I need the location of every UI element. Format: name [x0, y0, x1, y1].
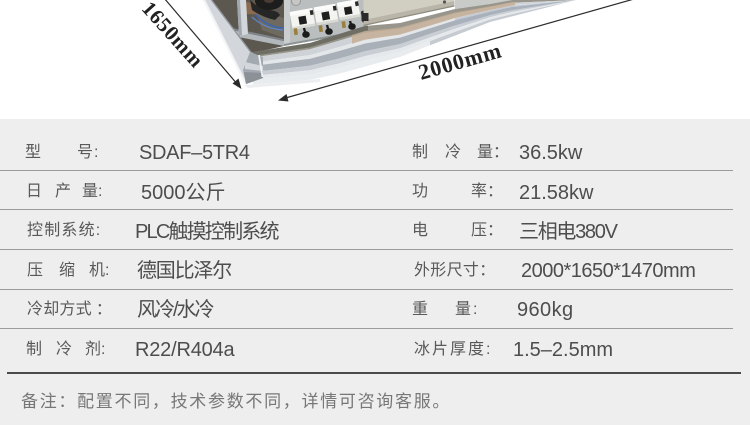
svg-text:1650mm: 1650mm [137, 0, 209, 72]
